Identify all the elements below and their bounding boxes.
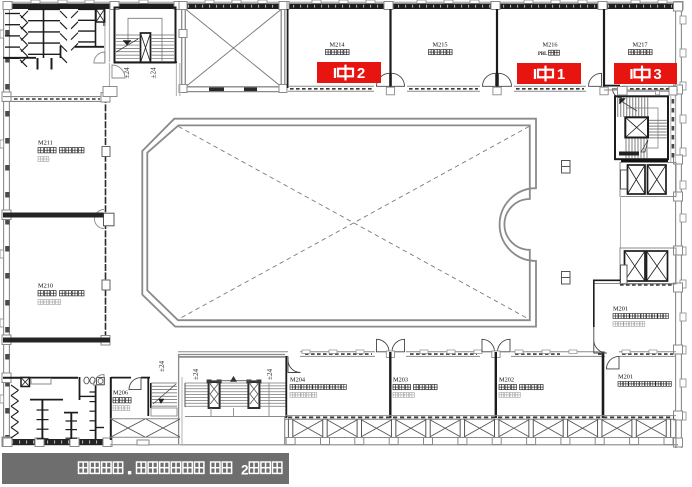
svg-text:M206: M206: [113, 390, 128, 397]
svg-text:2: 2: [357, 65, 365, 82]
svg-text:1: 1: [557, 66, 565, 83]
svg-text:M214: M214: [329, 42, 345, 49]
svg-text:I: I: [629, 66, 633, 83]
svg-text:M204: M204: [290, 377, 306, 384]
svg-text:M201: M201: [618, 374, 633, 381]
svg-text:PBL: PBL: [538, 52, 547, 57]
svg-text:M210: M210: [38, 283, 53, 290]
svg-text:I: I: [533, 66, 537, 83]
svg-text:M211: M211: [38, 140, 53, 147]
svg-text:I: I: [333, 65, 337, 82]
svg-text:M215: M215: [432, 42, 447, 49]
svg-text:2: 2: [241, 463, 249, 478]
svg-text:M201: M201: [613, 306, 628, 313]
svg-text:±24: ±24: [192, 368, 200, 380]
svg-text:M202: M202: [499, 377, 514, 384]
svg-text:3: 3: [653, 66, 661, 83]
svg-text:M203: M203: [393, 377, 408, 384]
svg-text:M217: M217: [632, 42, 647, 49]
svg-text:±24: ±24: [158, 360, 166, 372]
svg-text:±24: ±24: [150, 67, 158, 79]
svg-text:M216: M216: [542, 42, 557, 49]
svg-text:±24: ±24: [266, 368, 274, 380]
